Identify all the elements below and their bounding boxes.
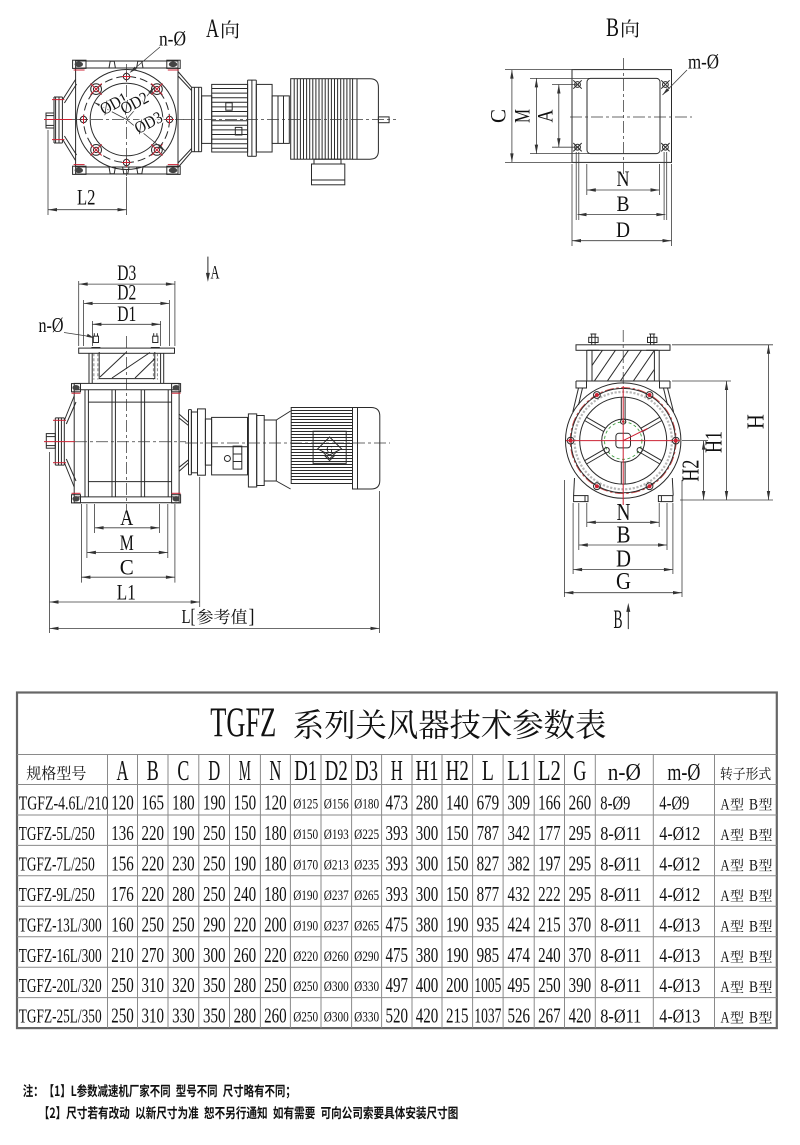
svg-text:TGFZ-16L/300: TGFZ-16L/300 (19, 945, 102, 967)
svg-text:Ø265: Ø265 (354, 888, 379, 904)
svg-text:H2: H2 (679, 460, 705, 482)
svg-text:432: 432 (507, 882, 530, 906)
svg-text:280: 280 (234, 1004, 257, 1028)
svg-text:230: 230 (172, 851, 195, 875)
svg-text:]: ] (249, 606, 255, 628)
svg-text:200: 200 (264, 912, 287, 936)
svg-text:D: D (208, 756, 220, 787)
svg-text:Ø237: Ø237 (324, 888, 349, 904)
svg-text:H2: H2 (446, 756, 469, 787)
svg-text:350: 350 (203, 973, 226, 997)
svg-text:827: 827 (477, 851, 500, 875)
svg-text:B: B (749, 918, 758, 935)
svg-text:190: 190 (446, 943, 469, 967)
svg-text:290: 290 (203, 912, 226, 936)
svg-text:Ø190: Ø190 (293, 888, 318, 904)
svg-text:D1: D1 (294, 756, 317, 787)
svg-text:1005: 1005 (474, 973, 501, 997)
svg-text:Ø213: Ø213 (324, 857, 349, 873)
svg-text:Ø250: Ø250 (293, 979, 318, 995)
svg-text:D: D (616, 217, 630, 242)
svg-text:L1: L1 (507, 756, 530, 787)
svg-text:Ø250: Ø250 (293, 1010, 318, 1026)
svg-text:A: A (206, 14, 219, 43)
svg-text:n-Ø: n-Ø (159, 27, 186, 51)
svg-text:D2: D2 (325, 756, 348, 787)
svg-text:140: 140 (446, 791, 469, 815)
svg-text:4-Ø12: 4-Ø12 (659, 824, 700, 845)
svg-text:G: G (326, 445, 333, 455)
svg-text:8-Ø11: 8-Ø11 (600, 854, 641, 875)
svg-text:260: 260 (264, 1004, 287, 1028)
svg-text:Ø290: Ø290 (354, 949, 379, 965)
svg-text:390: 390 (569, 973, 592, 997)
svg-text:250: 250 (203, 882, 226, 906)
svg-text:L1: L1 (117, 579, 136, 604)
svg-text:Ø260: Ø260 (324, 949, 349, 965)
svg-text:393: 393 (386, 851, 409, 875)
svg-text:250: 250 (264, 973, 287, 997)
svg-text:Ø220: Ø220 (293, 949, 318, 965)
svg-text:M: M (510, 109, 535, 123)
svg-text:Ø265: Ø265 (354, 918, 379, 934)
svg-text:120: 120 (264, 791, 287, 815)
svg-text:Ø225: Ø225 (354, 827, 379, 843)
svg-text:342: 342 (507, 821, 530, 845)
svg-text:250: 250 (142, 912, 165, 936)
svg-text:B: B (147, 756, 159, 787)
svg-text:8-Ø11: 8-Ø11 (600, 946, 641, 967)
svg-text:L: L (482, 756, 494, 787)
svg-text:420: 420 (416, 1004, 439, 1028)
svg-text:197: 197 (538, 851, 561, 875)
svg-text:295: 295 (569, 821, 592, 845)
svg-text:787: 787 (477, 821, 500, 845)
svg-text:4-Ø12: 4-Ø12 (659, 854, 700, 875)
svg-text:B: B (617, 523, 631, 549)
svg-text:Ø150: Ø150 (293, 827, 318, 843)
svg-text:220: 220 (264, 943, 287, 967)
svg-text:280: 280 (234, 973, 257, 997)
svg-text:180: 180 (264, 882, 287, 906)
svg-text:B: B (606, 13, 619, 42)
svg-text:220: 220 (142, 851, 165, 875)
svg-text:250: 250 (538, 973, 561, 997)
svg-text:Ø170: Ø170 (293, 857, 318, 873)
svg-text:Ø193: Ø193 (324, 827, 349, 843)
svg-text:m-Ø: m-Ø (688, 50, 719, 74)
svg-text:270: 270 (142, 943, 165, 967)
svg-text:393: 393 (386, 821, 409, 845)
svg-text:295: 295 (569, 851, 592, 875)
svg-text:260: 260 (234, 943, 257, 967)
svg-text:320: 320 (172, 973, 195, 997)
svg-text:Ø300: Ø300 (324, 1010, 349, 1026)
svg-text:310: 310 (142, 973, 165, 997)
svg-text:Ø180: Ø180 (354, 797, 379, 813)
svg-text:A: A (211, 263, 220, 284)
svg-text:4-Ø13: 4-Ø13 (659, 976, 700, 997)
svg-text:400: 400 (416, 973, 439, 997)
svg-text:8-Ø11: 8-Ø11 (600, 915, 641, 936)
svg-text:H: H (744, 414, 770, 429)
svg-text:A: A (721, 979, 730, 996)
svg-text:M: M (120, 530, 134, 555)
svg-text:Ø237: Ø237 (324, 918, 349, 934)
svg-text:420: 420 (569, 1004, 592, 1028)
svg-text:300: 300 (416, 821, 439, 845)
svg-text:220: 220 (142, 821, 165, 845)
svg-text:250: 250 (172, 912, 195, 936)
svg-text:200: 200 (446, 973, 469, 997)
svg-text:215: 215 (538, 912, 561, 936)
svg-text:A: A (117, 756, 129, 787)
svg-text:474: 474 (507, 943, 530, 967)
svg-text:382: 382 (507, 851, 530, 875)
svg-text:250: 250 (203, 821, 226, 845)
svg-text:309: 309 (507, 791, 530, 815)
svg-text:497: 497 (386, 973, 409, 997)
svg-text:220: 220 (142, 882, 165, 906)
svg-text:424: 424 (507, 912, 530, 936)
svg-text:240: 240 (234, 882, 257, 906)
svg-text:160: 160 (111, 912, 134, 936)
svg-text:Ø330: Ø330 (354, 1010, 379, 1026)
svg-text:TGFZ: TGFZ (210, 701, 276, 747)
svg-text:4-Ø12: 4-Ø12 (659, 885, 700, 906)
svg-text:190: 190 (446, 912, 469, 936)
svg-text:310: 310 (142, 1004, 165, 1028)
svg-text:8-Ø9: 8-Ø9 (600, 794, 630, 815)
svg-text:A: A (721, 827, 730, 844)
svg-text:TGFZ-20L/320: TGFZ-20L/320 (19, 975, 102, 997)
svg-text:350: 350 (203, 1004, 226, 1028)
svg-text:267: 267 (538, 1004, 561, 1028)
svg-text:A: A (533, 109, 558, 122)
svg-text:A: A (721, 857, 730, 874)
svg-text:222: 222 (538, 882, 561, 906)
svg-text:475: 475 (386, 912, 409, 936)
svg-text:8-Ø11: 8-Ø11 (600, 824, 641, 845)
svg-text:4-Ø9: 4-Ø9 (659, 794, 689, 815)
svg-text:Ø300: Ø300 (324, 979, 349, 995)
svg-text:250: 250 (111, 1004, 134, 1028)
svg-text:260: 260 (569, 791, 592, 815)
svg-text:330: 330 (172, 1004, 195, 1028)
svg-text:166: 166 (538, 791, 561, 815)
svg-text:C: C (486, 109, 511, 123)
svg-text:B: B (749, 857, 758, 874)
svg-text:150: 150 (234, 791, 257, 815)
svg-text:TGFZ-25L/350: TGFZ-25L/350 (19, 1006, 102, 1028)
svg-text:C: C (177, 756, 189, 787)
svg-text:n-Ø: n-Ø (39, 313, 64, 337)
svg-text:190: 190 (203, 791, 226, 815)
svg-text:B: B (749, 797, 758, 814)
svg-text:215: 215 (446, 1004, 469, 1028)
svg-text:220: 220 (234, 912, 257, 936)
svg-text:300: 300 (416, 851, 439, 875)
svg-text:250: 250 (203, 851, 226, 875)
svg-text:n-Ø: n-Ø (608, 760, 641, 786)
svg-text:H: H (391, 756, 403, 787)
svg-text:150: 150 (446, 821, 469, 845)
svg-text:B: B (749, 827, 758, 844)
svg-text:B: B (749, 888, 758, 905)
svg-text:300: 300 (416, 882, 439, 906)
svg-text:C: C (120, 554, 134, 579)
svg-text:180: 180 (264, 851, 287, 875)
svg-text:150: 150 (446, 851, 469, 875)
svg-text:4-Ø13: 4-Ø13 (659, 946, 700, 967)
svg-text:1037: 1037 (474, 1004, 501, 1028)
svg-text:Ø235: Ø235 (354, 857, 379, 873)
svg-text:Ø125: Ø125 (293, 797, 318, 813)
svg-text:473: 473 (386, 791, 409, 815)
svg-text:M: M (239, 756, 251, 787)
svg-text:280: 280 (416, 791, 439, 815)
svg-text:300: 300 (203, 943, 226, 967)
svg-text:393: 393 (386, 882, 409, 906)
svg-text:Ø190: Ø190 (293, 918, 318, 934)
svg-text:B: B (617, 191, 630, 216)
svg-text:G: G (573, 756, 586, 787)
svg-text:G: G (616, 569, 631, 595)
svg-text:176: 176 (111, 882, 134, 906)
svg-text:A: A (721, 949, 730, 966)
svg-text:A: A (721, 918, 730, 935)
svg-text:150: 150 (234, 821, 257, 845)
svg-text:m-Ø: m-Ø (667, 760, 700, 786)
svg-text:B: B (749, 979, 758, 996)
svg-text:L[: L[ (182, 606, 196, 628)
svg-text:180: 180 (264, 821, 287, 845)
svg-text:A: A (721, 1010, 730, 1027)
svg-text:520: 520 (386, 1004, 409, 1028)
svg-text:B: B (749, 949, 758, 966)
svg-text:TGFZ-9L/250: TGFZ-9L/250 (19, 884, 95, 906)
svg-text:370: 370 (569, 912, 592, 936)
svg-text:8-Ø11: 8-Ø11 (600, 1007, 641, 1028)
svg-text:D1: D1 (117, 301, 136, 326)
svg-text:877: 877 (477, 882, 500, 906)
svg-text:A: A (721, 888, 730, 905)
svg-text:Ø330: Ø330 (354, 979, 379, 995)
svg-text:4-Ø13: 4-Ø13 (659, 1007, 700, 1028)
svg-text:B: B (614, 605, 623, 634)
svg-text:Ø156: Ø156 (324, 797, 349, 813)
svg-text:190: 190 (234, 851, 257, 875)
svg-text:TGFZ-5L/250: TGFZ-5L/250 (19, 823, 95, 845)
svg-text:A: A (721, 797, 730, 814)
svg-text:679: 679 (477, 791, 500, 815)
svg-text:N: N (617, 166, 630, 191)
svg-text:190: 190 (172, 821, 195, 845)
svg-text:280: 280 (172, 882, 195, 906)
svg-text:D3: D3 (355, 756, 378, 787)
svg-text:985: 985 (477, 943, 500, 967)
svg-text:526: 526 (507, 1004, 530, 1028)
svg-text:TGFZ-13L/300: TGFZ-13L/300 (19, 914, 102, 936)
svg-text:210: 210 (111, 943, 134, 967)
svg-text:177: 177 (538, 821, 561, 845)
svg-text:475: 475 (386, 943, 409, 967)
svg-text:4-Ø13: 4-Ø13 (659, 915, 700, 936)
svg-text:150: 150 (446, 882, 469, 906)
svg-text:165: 165 (142, 791, 165, 815)
svg-text:240: 240 (538, 943, 561, 967)
svg-text:TGFZ-7L/250: TGFZ-7L/250 (19, 853, 95, 875)
svg-text:H1: H1 (416, 756, 439, 787)
svg-text:380: 380 (416, 943, 439, 967)
svg-text:180: 180 (172, 791, 195, 815)
svg-text:8-Ø11: 8-Ø11 (600, 885, 641, 906)
svg-text:156: 156 (111, 851, 134, 875)
svg-text:370: 370 (569, 943, 592, 967)
svg-text:380: 380 (416, 912, 439, 936)
svg-text:120: 120 (111, 791, 134, 815)
svg-text:B: B (749, 1010, 758, 1027)
svg-text:935: 935 (477, 912, 500, 936)
svg-text:N: N (269, 756, 281, 787)
svg-text:L2: L2 (538, 756, 561, 787)
svg-text:250: 250 (111, 973, 134, 997)
svg-text:A: A (120, 505, 133, 530)
svg-text:TGFZ-4.6L/210: TGFZ-4.6L/210 (19, 793, 109, 815)
svg-text:495: 495 (507, 973, 530, 997)
svg-text:300: 300 (172, 943, 195, 967)
svg-text:L2: L2 (77, 185, 96, 210)
svg-text:136: 136 (111, 821, 134, 845)
svg-text:H1: H1 (702, 431, 728, 453)
svg-text:8-Ø11: 8-Ø11 (600, 976, 641, 997)
svg-text:295: 295 (569, 882, 592, 906)
